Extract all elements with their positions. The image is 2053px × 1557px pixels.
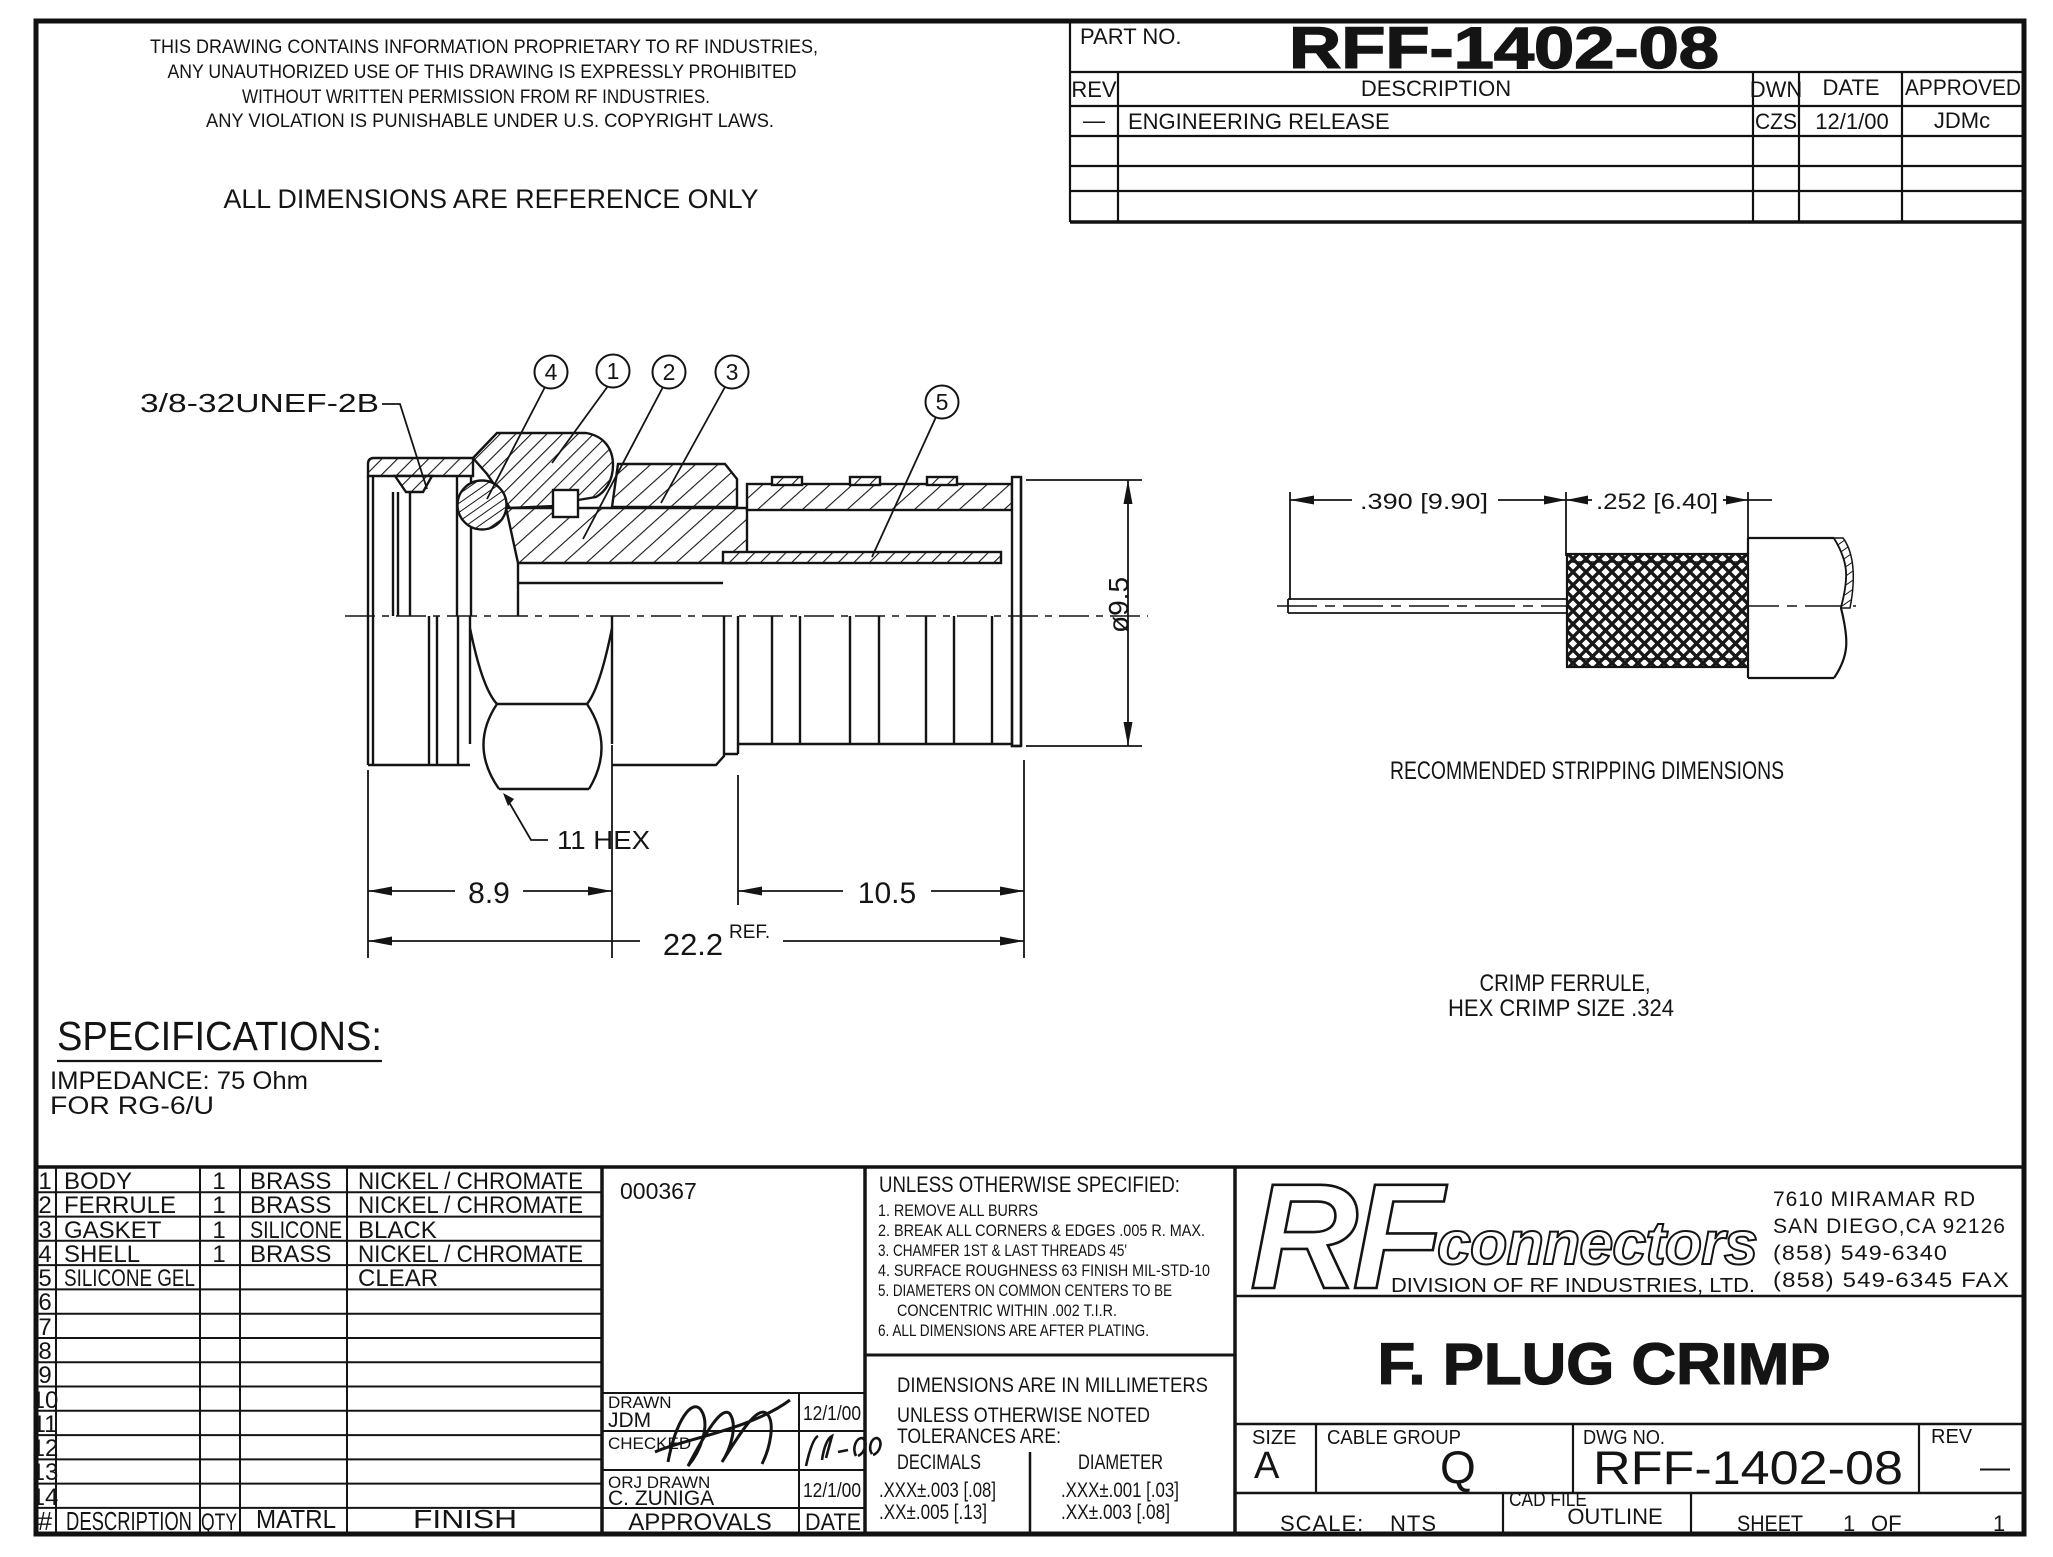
svg-text:.252 [6.40]: .252 [6.40] xyxy=(1596,489,1718,514)
svg-text:DIVISION OF RF INDUSTRIES, LTD: DIVISION OF RF INDUSTRIES, LTD. xyxy=(1391,1275,1755,1297)
svg-text:NICKEL / CHROMATE: NICKEL / CHROMATE xyxy=(358,1168,583,1195)
svg-text:ALL DIMENSIONS ARE REFERENCE O: ALL DIMENSIONS ARE REFERENCE ONLY xyxy=(224,184,759,214)
svg-text:5: 5 xyxy=(38,1265,51,1292)
svg-text:1: 1 xyxy=(1843,1511,1855,1536)
svg-text:4: 4 xyxy=(38,1241,51,1268)
svg-text:DWN: DWN xyxy=(1750,77,1803,102)
svg-text:CZS: CZS xyxy=(1755,109,1797,134)
svg-text:SILICONE: SILICONE xyxy=(250,1217,342,1244)
svg-text:3. CHAMFER 1ST & LAST THR: 3. CHAMFER 1ST & LAST THREADS 45' xyxy=(878,1242,1127,1260)
svg-text:QTY: QTY xyxy=(201,1509,237,1536)
svg-text:Q: Q xyxy=(1440,1441,1476,1493)
svg-text:1: 1 xyxy=(212,1241,225,1268)
svg-text:#: # xyxy=(38,1506,53,1536)
svg-text:6. ALL DIMENSIONS ARE AFTE: 6. ALL DIMENSIONS ARE AFTER PLATING. xyxy=(878,1322,1149,1340)
svg-text:HEX CRIMP SIZE .324: HEX CRIMP SIZE .324 xyxy=(1448,995,1674,1022)
svg-text:A: A xyxy=(1254,1445,1280,1487)
svg-text:(858) 549-6345 FAX: (858) 549-6345 FAX xyxy=(1773,1269,2010,1292)
svg-text:NICKEL / CHROMATE: NICKEL / CHROMATE xyxy=(358,1192,583,1219)
svg-text:SCALE:: SCALE: xyxy=(1280,1511,1364,1536)
svg-text:—: — xyxy=(1980,1451,2010,1484)
svg-text:2. BREAK ALL CORNERS & ED: 2. BREAK ALL CORNERS & EDGES .005 R. MAX… xyxy=(878,1222,1205,1240)
svg-text:1: 1 xyxy=(212,1168,225,1195)
svg-text:DESCRIPTION: DESCRIPTION xyxy=(1361,76,1511,101)
svg-text:DIMENSIONS ARE IN MILLIMETERS: DIMENSIONS ARE IN MILLIMETERS xyxy=(897,1374,1208,1397)
svg-text:11 HEX: 11 HEX xyxy=(557,825,650,855)
svg-text:DESCRIPTION: DESCRIPTION xyxy=(66,1506,192,1536)
svg-text:7610 MIRAMAR RD: 7610 MIRAMAR RD xyxy=(1773,1188,1976,1211)
svg-text:1: 1 xyxy=(607,358,620,384)
svg-text:.XXX±.001 [.03]: .XXX±.001 [.03] xyxy=(1061,1479,1179,1502)
svg-text:.XXX±.003 [.08]: .XXX±.003 [.08] xyxy=(879,1479,996,1502)
svg-text:BODY: BODY xyxy=(64,1168,132,1195)
svg-text:000367: 000367 xyxy=(620,1178,697,1204)
svg-text:C. ZUNIGA: C. ZUNIGA xyxy=(608,1487,714,1510)
svg-text:9: 9 xyxy=(38,1362,51,1389)
svg-text:8: 8 xyxy=(38,1338,51,1365)
svg-text:.XX±.005 [.13]: .XX±.005 [.13] xyxy=(879,1501,987,1524)
svg-text:ø9.5: ø9.5 xyxy=(1103,577,1134,633)
svg-text:MATRL: MATRL xyxy=(256,1504,336,1534)
svg-text:1. REMOVE ALL BURRS: 1. REMOVE ALL BURRS xyxy=(878,1202,1038,1220)
svg-text:ENGINEERING RELEASE: ENGINEERING RELEASE xyxy=(1128,109,1390,134)
svg-text:10.5: 10.5 xyxy=(858,877,916,910)
svg-text:WITHOUT WRITTEN PERMISSION FRO: WITHOUT WRITTEN PERMISSION FROM RF INDUS… xyxy=(242,86,710,108)
svg-text:1: 1 xyxy=(38,1168,51,1195)
svg-text:PART NO.: PART NO. xyxy=(1080,24,1181,49)
svg-text:JDM: JDM xyxy=(608,1409,651,1432)
svg-text:CLEAR: CLEAR xyxy=(358,1265,438,1292)
svg-text:.XX±.003 [.08]: .XX±.003 [.08] xyxy=(1061,1501,1170,1524)
svg-text:11: 11 xyxy=(33,1411,58,1438)
svg-text:SILICONE GEL: SILICONE GEL xyxy=(64,1265,195,1292)
svg-text:3: 3 xyxy=(726,359,739,385)
svg-text:8.9: 8.9 xyxy=(468,877,510,910)
svg-text:1: 1 xyxy=(212,1192,225,1219)
svg-text:2: 2 xyxy=(663,359,676,385)
svg-text:connectors: connectors xyxy=(1437,1209,1757,1277)
svg-text:SHEET: SHEET xyxy=(1737,1511,1803,1536)
svg-text:FINISH: FINISH xyxy=(413,1504,517,1534)
svg-text:4: 4 xyxy=(545,359,558,385)
svg-text:RFF-1402-08: RFF-1402-08 xyxy=(1593,1441,1903,1494)
svg-text:3: 3 xyxy=(38,1217,51,1244)
svg-text:NICKEL / CHROMATE: NICKEL / CHROMATE xyxy=(358,1241,583,1268)
svg-text:ANY UNAUTHORIZED USE OF THIS D: ANY UNAUTHORIZED USE OF THIS DRAWING IS … xyxy=(168,61,797,83)
svg-text:6: 6 xyxy=(38,1289,51,1316)
svg-text:13: 13 xyxy=(32,1459,59,1486)
svg-text:FOR RG-6/U: FOR RG-6/U xyxy=(50,1092,214,1120)
svg-text:SPECIFICATIONS:: SPECIFICATIONS: xyxy=(57,1013,382,1059)
svg-text:DIAMETER: DIAMETER xyxy=(1078,1451,1163,1474)
svg-text:5: 5 xyxy=(936,389,949,415)
svg-text:OUTLINE: OUTLINE xyxy=(1567,1504,1662,1529)
svg-text:SHELL: SHELL xyxy=(64,1241,140,1268)
svg-text:CONCENTRIC WITHIN .002 T.I.: CONCENTRIC WITHIN .002 T.I.R. xyxy=(897,1302,1117,1320)
svg-text:—: — xyxy=(1083,108,1105,133)
svg-text:GASKET: GASKET xyxy=(64,1217,162,1244)
svg-text:12/1/00: 12/1/00 xyxy=(803,1480,861,1502)
svg-text:SAN DIEGO,CA 92126: SAN DIEGO,CA 92126 xyxy=(1773,1215,2006,1238)
svg-text:UNLESS OTHERWISE NOTED: UNLESS OTHERWISE NOTED xyxy=(897,1404,1150,1427)
svg-text:IMPEDANCE: 75 Ohm: IMPEDANCE: 75 Ohm xyxy=(50,1067,308,1095)
svg-text:REF.: REF. xyxy=(729,922,770,943)
svg-text:RECOMMENDED STRIPPING DIMENSIO: RECOMMENDED STRIPPING DIMENSIONS xyxy=(1390,757,1784,785)
svg-text:RFF-1402-08: RFF-1402-08 xyxy=(1289,16,1719,81)
svg-text:APPROVED: APPROVED xyxy=(1905,75,2021,100)
svg-text:TOLERANCES ARE:: TOLERANCES ARE: xyxy=(897,1425,1061,1448)
svg-text:REV: REV xyxy=(1071,77,1117,102)
svg-text:F. PLUG CRIMP: F. PLUG CRIMP xyxy=(1378,1332,1831,1397)
svg-text:10: 10 xyxy=(32,1387,59,1414)
svg-text:OF: OF xyxy=(1871,1511,1902,1536)
svg-text:4. SURFACE ROUGHNESS 63 FI: 4. SURFACE ROUGHNESS 63 FINISH MIL-STD-1… xyxy=(878,1262,1210,1280)
svg-text:22.2: 22.2 xyxy=(663,927,723,962)
svg-text:12/1/00: 12/1/00 xyxy=(1815,109,1888,134)
svg-text:BLACK: BLACK xyxy=(358,1217,437,1244)
svg-text:BRASS: BRASS xyxy=(250,1168,331,1195)
svg-text:12/1/00: 12/1/00 xyxy=(803,1403,861,1425)
svg-text:THIS DRAWING CONTAINS INFORMAT: THIS DRAWING CONTAINS INFORMATION PROPRI… xyxy=(150,36,818,58)
svg-text:FERRULE: FERRULE xyxy=(64,1192,176,1219)
svg-text:DATE: DATE xyxy=(805,1509,861,1536)
svg-text:CRIMP FERRULE,: CRIMP FERRULE, xyxy=(1480,970,1651,997)
svg-text:REV: REV xyxy=(1931,1426,1973,1448)
svg-text:APPROVALS: APPROVALS xyxy=(628,1509,772,1536)
svg-text:BRASS: BRASS xyxy=(250,1241,331,1268)
svg-text:3/8-32UNEF-2B: 3/8-32UNEF-2B xyxy=(140,388,379,418)
svg-text:5. DIAMETERS ON COMMON CEN: 5. DIAMETERS ON COMMON CENTERS TO BE xyxy=(878,1282,1172,1300)
svg-text:DATE: DATE xyxy=(1822,75,1879,100)
svg-text:NTS: NTS xyxy=(1390,1511,1437,1536)
svg-text:1: 1 xyxy=(1993,1511,2005,1536)
svg-text:UNLESS OTHERWISE SPECIFIED:: UNLESS OTHERWISE SPECIFIED: xyxy=(879,1172,1180,1197)
svg-text:1: 1 xyxy=(212,1217,225,1244)
svg-text:JDMc: JDMc xyxy=(1934,108,1990,133)
svg-text:ANY VIOLATION IS PUNISHABLE UN: ANY VIOLATION IS PUNISHABLE UNDER U.S. C… xyxy=(206,110,774,132)
svg-text:(858) 549-6340: (858) 549-6340 xyxy=(1773,1242,1948,1265)
svg-text:2: 2 xyxy=(38,1192,51,1219)
svg-text:DECIMALS: DECIMALS xyxy=(897,1451,981,1474)
svg-text:7: 7 xyxy=(38,1314,51,1341)
svg-text:BRASS: BRASS xyxy=(250,1192,331,1219)
svg-text:.390 [9.90]: .390 [9.90] xyxy=(1360,489,1488,514)
svg-text:12: 12 xyxy=(32,1435,59,1462)
